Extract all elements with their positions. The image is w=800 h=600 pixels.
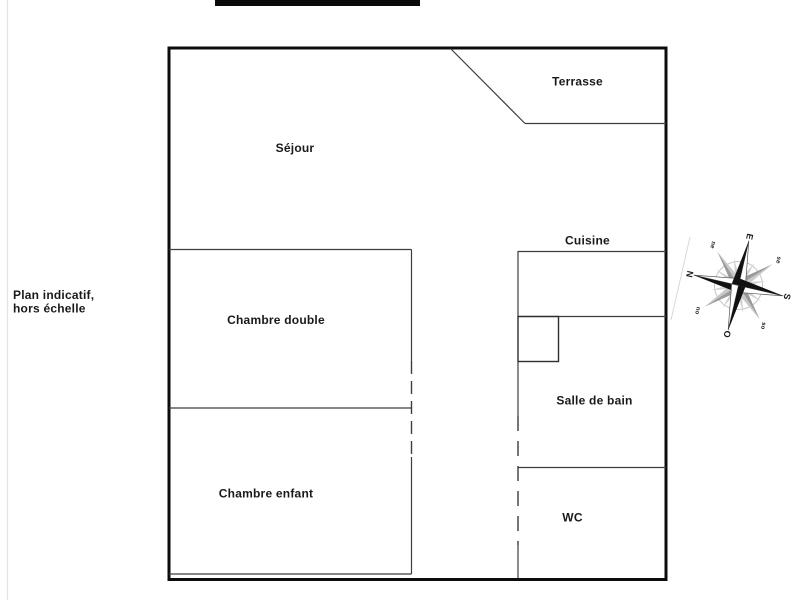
svg-text:Cuisine: Cuisine <box>565 234 610 248</box>
svg-text:Chambre double: Chambre double <box>227 313 325 327</box>
svg-text:hors échelle: hors échelle <box>13 302 86 316</box>
svg-text:Terrasse: Terrasse <box>552 75 603 89</box>
svg-text:Plan indicatif,: Plan indicatif, <box>13 288 94 302</box>
svg-text:Séjour: Séjour <box>276 141 315 155</box>
svg-text:Salle de bain: Salle de bain <box>556 394 632 408</box>
svg-text:WC: WC <box>562 511 583 525</box>
svg-text:Chambre enfant: Chambre enfant <box>219 487 313 501</box>
